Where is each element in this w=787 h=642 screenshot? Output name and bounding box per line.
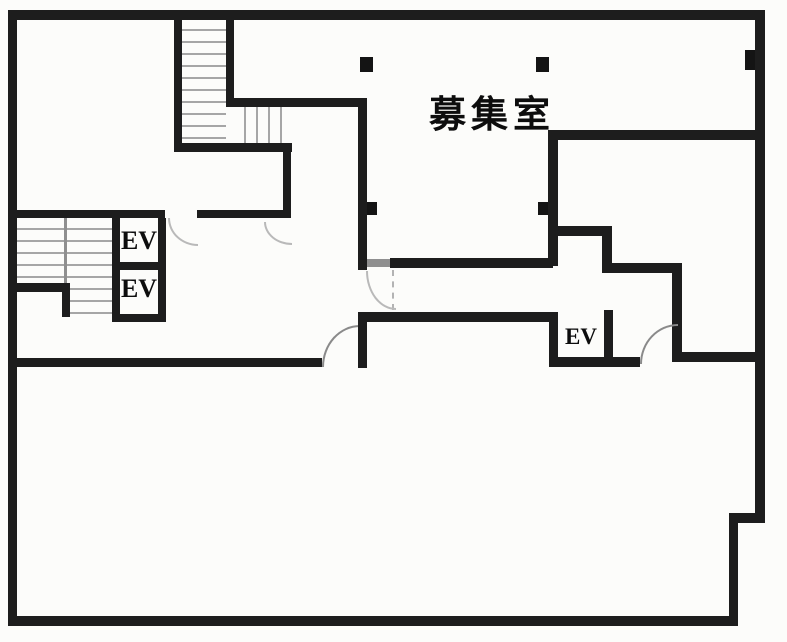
- doorstop-center-wall: [367, 202, 377, 215]
- elevator-right-label: EV: [558, 316, 604, 357]
- wall-corridor-north: [390, 258, 553, 268]
- wall-outer-bottom: [8, 616, 737, 626]
- wall-outer-right: [755, 10, 765, 523]
- doorstop-east-room-wall: [538, 202, 548, 215]
- main-room-label: 募集室: [429, 84, 555, 138]
- main-room-text: 募集室: [429, 94, 555, 135]
- elevator-left-upper-text: EV: [121, 226, 157, 256]
- stair-west-flight-b-treads: [67, 218, 112, 317]
- doorstop-right-outer-wall: [745, 50, 755, 70]
- door-arc-lower-hall-west: [322, 325, 360, 367]
- elevator-left-lower-label: EV: [118, 266, 160, 312]
- wall-notch-vertical: [729, 513, 738, 626]
- wall-east-room-west: [548, 130, 558, 266]
- wall-ev-left-bottom: [112, 314, 166, 322]
- wall-lower-hall-top: [13, 358, 322, 367]
- wall-east-room-bottom: [682, 352, 757, 362]
- wall-nw-room-bottom-right: [197, 210, 287, 218]
- stair-top-flight-treads: [182, 19, 226, 143]
- stair-top-return-treads: [234, 107, 283, 143]
- door-arc-nw-room: [168, 218, 198, 246]
- wall-center-vertical-upper: [358, 98, 367, 270]
- wall-stair-west-stub: [62, 283, 70, 317]
- wall-ev-right-bottom: [549, 357, 640, 367]
- door-arc-corridor: [366, 271, 396, 310]
- stair-west-flight-a-treads: [17, 218, 64, 283]
- elevator-left-lower-text: EV: [121, 274, 157, 304]
- wall-outer-top: [8, 10, 765, 20]
- wall-stair-return-vertical: [283, 143, 291, 218]
- column-main-room-east: [536, 57, 549, 72]
- elevator-right-text: EV: [565, 324, 597, 350]
- wall-nw-room-bottom-left: [13, 210, 165, 218]
- wall-east-zig-h2: [602, 263, 682, 273]
- wall-corridor-north-stub: [367, 259, 392, 267]
- wall-stair-shaft-left: [174, 17, 182, 152]
- wall-stair-shaft-right: [226, 17, 234, 102]
- wall-stair-west-landing: [17, 283, 62, 292]
- door-arc-lower-hall-east: [640, 324, 678, 364]
- elevator-left-upper-label: EV: [118, 220, 160, 262]
- floor-plan: EV EV 募集室 EV: [0, 0, 787, 642]
- door-arc-lobby: [264, 222, 292, 245]
- wall-upper-mid-horizontal: [226, 98, 365, 107]
- wall-corridor-south: [360, 312, 557, 322]
- wall-east-room-top: [548, 130, 765, 140]
- wall-ev-right-west: [549, 312, 558, 360]
- wall-outer-left: [8, 10, 17, 626]
- wall-stair-bottom: [174, 143, 292, 152]
- column-main-room-west: [360, 57, 373, 72]
